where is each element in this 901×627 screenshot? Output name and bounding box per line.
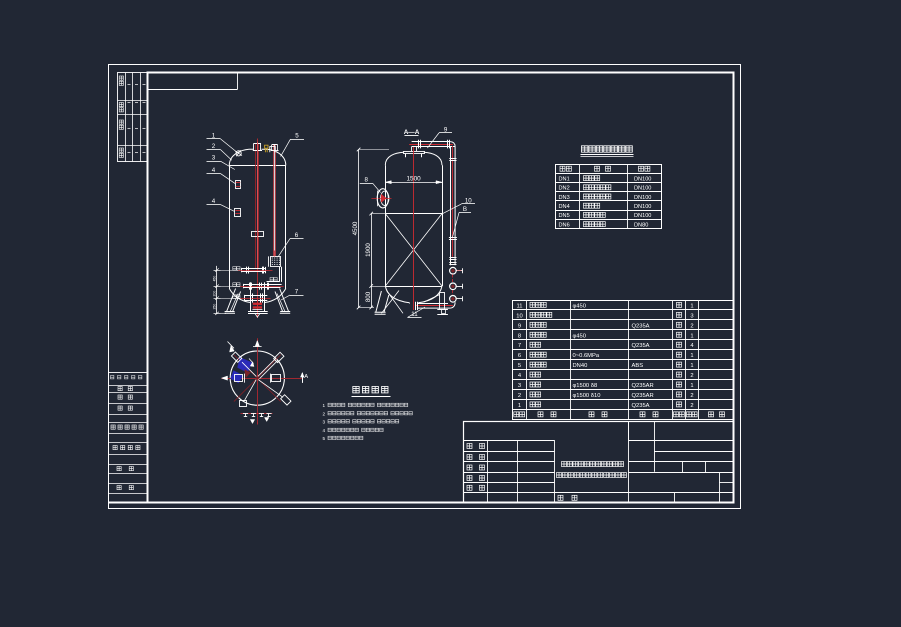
svg-text:0~0.6MPa: 0~0.6MPa	[573, 353, 600, 359]
svg-text:φ1500 δ8: φ1500 δ8	[573, 383, 598, 389]
svg-text:4: 4	[323, 428, 326, 433]
svg-text:1: 1	[690, 383, 693, 389]
svg-text:1: 1	[690, 353, 693, 359]
svg-text:1: 1	[690, 303, 693, 309]
svg-text:800: 800	[365, 291, 372, 302]
svg-text:Q235AR: Q235AR	[632, 383, 654, 389]
svg-text:2: 2	[690, 323, 693, 329]
svg-text:Q235A: Q235A	[632, 403, 650, 409]
svg-text:3: 3	[212, 155, 216, 162]
svg-text:Q235AR: Q235AR	[632, 393, 654, 399]
svg-text:9: 9	[518, 323, 521, 329]
svg-text:Q235A: Q235A	[632, 323, 650, 329]
svg-text:DN40: DN40	[573, 363, 588, 369]
svg-text:6: 6	[295, 232, 299, 239]
svg-text:DN100: DN100	[634, 186, 651, 192]
svg-text:5: 5	[518, 363, 521, 369]
svg-text:5: 5	[295, 133, 299, 140]
svg-text:11: 11	[516, 303, 522, 309]
svg-text:10: 10	[516, 313, 522, 319]
svg-text:8: 8	[518, 333, 521, 339]
svg-text:3: 3	[690, 313, 693, 319]
svg-text:1500: 1500	[406, 176, 421, 183]
svg-text:DN100: DN100	[634, 176, 651, 182]
svg-text:DN5: DN5	[559, 213, 570, 219]
svg-text:1: 1	[323, 403, 326, 408]
svg-text:2: 2	[212, 143, 216, 150]
svg-text:4: 4	[212, 198, 216, 205]
svg-text:B: B	[463, 206, 467, 213]
svg-text:φ450: φ450	[573, 333, 586, 339]
svg-text:2: 2	[690, 403, 693, 409]
svg-text:1: 1	[690, 333, 693, 339]
svg-text:DN100: DN100	[634, 204, 651, 210]
svg-text:ABS: ABS	[632, 363, 644, 369]
svg-text:DN3: DN3	[559, 195, 570, 201]
svg-text:2: 2	[690, 373, 693, 379]
svg-text:2: 2	[690, 393, 693, 399]
svg-text:DN1: DN1	[559, 176, 570, 182]
svg-text:A: A	[304, 374, 308, 380]
svg-text:φ450: φ450	[573, 303, 586, 309]
svg-text:7: 7	[295, 289, 299, 296]
svg-text:DN100: DN100	[634, 213, 651, 219]
svg-text:DN100: DN100	[634, 195, 651, 201]
svg-text:6: 6	[518, 353, 521, 359]
svg-text:2: 2	[323, 411, 326, 416]
svg-text:5: 5	[323, 436, 326, 441]
svg-text:Q235A: Q235A	[632, 343, 650, 349]
svg-text:1900: 1900	[365, 243, 372, 257]
svg-text:450: 450	[213, 276, 217, 282]
svg-text:φ1500 δ10: φ1500 δ10	[573, 393, 601, 399]
svg-text:4: 4	[212, 167, 216, 174]
svg-text:1: 1	[518, 403, 521, 409]
svg-text:4500: 4500	[352, 221, 359, 235]
svg-text:3: 3	[323, 419, 326, 424]
svg-text:3: 3	[518, 383, 521, 389]
svg-text:2: 2	[518, 393, 521, 399]
svg-text:1: 1	[690, 363, 693, 369]
svg-text:DN80: DN80	[634, 222, 648, 228]
svg-text:200: 200	[213, 291, 217, 297]
svg-text:8: 8	[364, 177, 368, 184]
svg-text:DN2: DN2	[559, 186, 570, 192]
svg-text:DN6: DN6	[559, 222, 570, 228]
svg-text:7: 7	[518, 343, 521, 349]
svg-text:DN4: DN4	[559, 204, 570, 210]
svg-text:250: 250	[213, 304, 217, 310]
